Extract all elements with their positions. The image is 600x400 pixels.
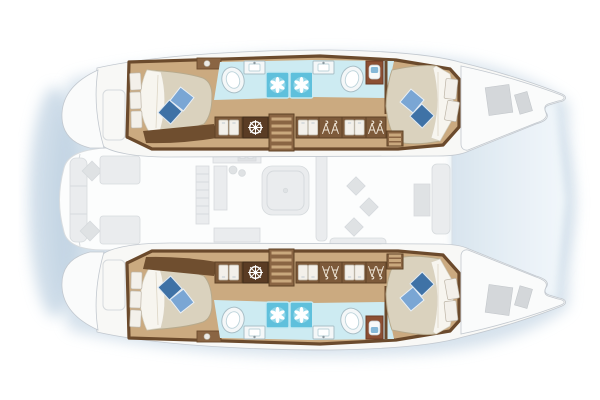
forward-seat — [432, 164, 450, 234]
flybridge-stairs — [196, 166, 209, 224]
cockpit-seat-block — [100, 216, 140, 244]
hull-starboard — [62, 50, 566, 157]
galley-sink — [239, 170, 246, 177]
forward-console — [414, 184, 430, 216]
cockpit-seat-block — [100, 156, 140, 184]
sofa-backrest — [316, 149, 327, 241]
table-center — [283, 188, 287, 192]
nav-counter — [214, 228, 260, 242]
galley-sink — [229, 166, 237, 174]
yacht-floorplan-canvas: Catamaran yacht interior floor plan (top… — [0, 0, 600, 400]
galley-counter-side — [214, 166, 227, 210]
floorplan-svg: Catamaran yacht interior floor plan (top… — [0, 0, 600, 400]
